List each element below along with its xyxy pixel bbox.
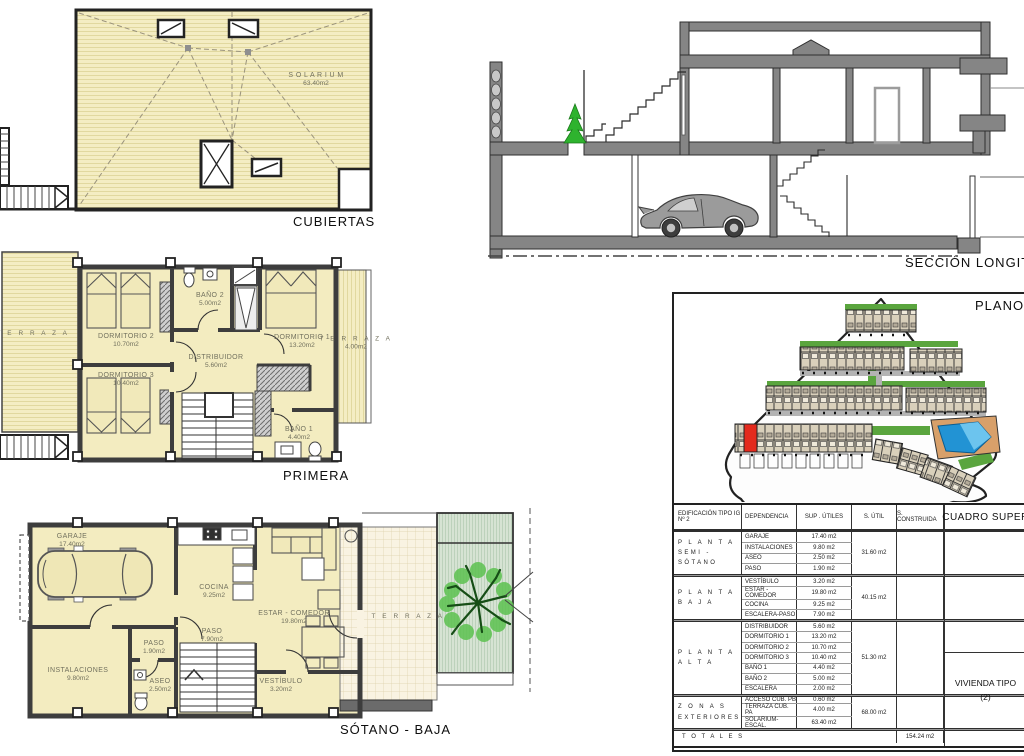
table-row: ESCALERA-PASO7.90 m2 [742,610,852,619]
interior-stair-section [776,150,847,237]
pool [931,416,1000,459]
roof-skylight-icon [252,159,281,176]
table-row: INSTALACIONES9.80 m2 [742,543,852,554]
room-label-estar: ESTAR - COMEDOR 19.80m2 [258,609,330,627]
room-label-paso1: PASO 1.90m2 [143,639,165,657]
table-row: DORMITORIO 310.40 m2 [742,653,852,663]
room-label-terraza-der: T E R R A Z A 4.00m2 [319,336,392,353]
header-s-construida: S. CONSTRUIDA [897,505,944,529]
cubiertas-plan-drawing [0,0,480,240]
room-label-bano1: BAÑO 1 4.40m2 [285,425,313,443]
garage-squares [740,454,862,468]
table-row: DISTRIBUIDOR5.60 m2 [742,622,852,632]
table-row: PASO1.90 m2 [742,564,852,574]
highlighted-unit [744,424,757,452]
subtotal: 31.60 m2 [852,532,897,574]
exterior-stair [0,128,68,209]
vivienda-tipo-cell: VIVIENDA TIPO (2) [945,653,1024,728]
architectural-sheet: S O L A R I U M 63.40m2 CUBIERTAS [0,0,1024,756]
door-section [875,88,899,143]
cubiertas-title: CUBIERTAS [293,214,375,229]
table-row: ESCALERA2.00 m2 [742,685,852,694]
header-dependencia: DEPENDENCIA [742,505,797,529]
room-label-paso2: PASO 7.90m2 [201,627,223,645]
roof-chimney-icon [201,141,232,187]
siteplan-drawing [674,294,1022,502]
sotano-title: SÓTANO - BAJA [340,722,451,737]
table-row: ASEO2.50 m2 [742,554,852,565]
tree-icon [564,104,586,143]
totals-built: 154.24 m2 [897,731,944,743]
roof-skylight-icon [229,20,258,37]
primera-plan-drawing [0,250,400,500]
room-label-bano2: BAÑO 2 5.00m2 [196,291,224,309]
table-row: ACCESO CUB. PB0.60 m2 [742,697,852,704]
subtotal: 68.00 m2 [852,697,897,728]
table-row: VESTÍBULO3.20 m2 [742,577,852,587]
room-label-aseo: ASEO 2.50m2 [149,677,171,695]
table-row: COCINA9.25 m2 [742,600,852,610]
table-row: GARAJE17.40 m2 [742,532,852,543]
exterior-stair-section [586,72,686,142]
table-row: DORMITORIO 210.70 m2 [742,643,852,653]
table-row: ESTAR - COMEDOR19.80 m2 [742,587,852,600]
room-label-cocina: COCINA 9.25m2 [199,583,229,601]
stairwell [180,643,255,712]
header-s-util: S. ÚTIL [852,505,897,529]
room-label-terraza: T E R R A Z A [0,330,70,338]
room-label-solarium: S O L A R I U M 63.40m2 [288,71,343,89]
seccion-drawing [480,0,1024,270]
subtotal: 40.15 m2 [852,577,897,619]
totals-label: T O T A L E S [674,731,897,743]
surface-table: EDIFICACIÓN TIPO IG Nº 2 DEPENDENCIA SUP… [672,503,1024,748]
car-top-icon [38,546,152,602]
exterior-stair [0,435,68,459]
room-label-dormitorio3: DORMITORIO 3 10.40m2 [98,371,154,389]
rubble-wall-stones [492,70,501,138]
table-row: BAÑO 14.40 m2 [742,664,852,674]
table-row: DORMITORIO 113.20 m2 [742,632,852,642]
header-sup-utiles: SUP . ÚTILES [797,505,852,529]
room-label-vestibulo: VESTÍBULO 3.20m2 [260,677,303,695]
table-row: BAÑO 25.00 m2 [742,674,852,684]
room-label-instalaciones: INSTALACIONES 9.80m2 [48,666,109,684]
car-side-icon [639,195,758,237]
primera-title: PRIMERA [283,468,349,483]
cuadro-column: CUADRO SUPER VIVIENDA TIPO (2) [944,505,1024,746]
table-row: SOLARIUM-ESCAL.63.40 m2 [742,717,852,729]
room-label-dormitorio2: DORMITORIO 2 10.70m2 [98,332,154,350]
room-label-distribuidor: DISTRIBUIDOR 5.60m2 [189,353,244,371]
header-edificacion: EDIFICACIÓN TIPO IG Nº 2 [674,505,742,529]
subtotal: 51.30 m2 [852,622,897,694]
seccion-title: SECCIÓN LONGITU [905,255,1024,270]
roof-skylight-icon [158,20,184,37]
room-label-garaje: GARAJE 17.40m2 [57,532,87,550]
room-label-terraza-sotano: T E R R A Z A [371,613,444,621]
table-row: TERRAZA CUB. PA4.00 m2 [742,704,852,717]
cuadro-header: CUADRO SUPER [945,505,1024,532]
stair-to-solarium [257,365,310,391]
